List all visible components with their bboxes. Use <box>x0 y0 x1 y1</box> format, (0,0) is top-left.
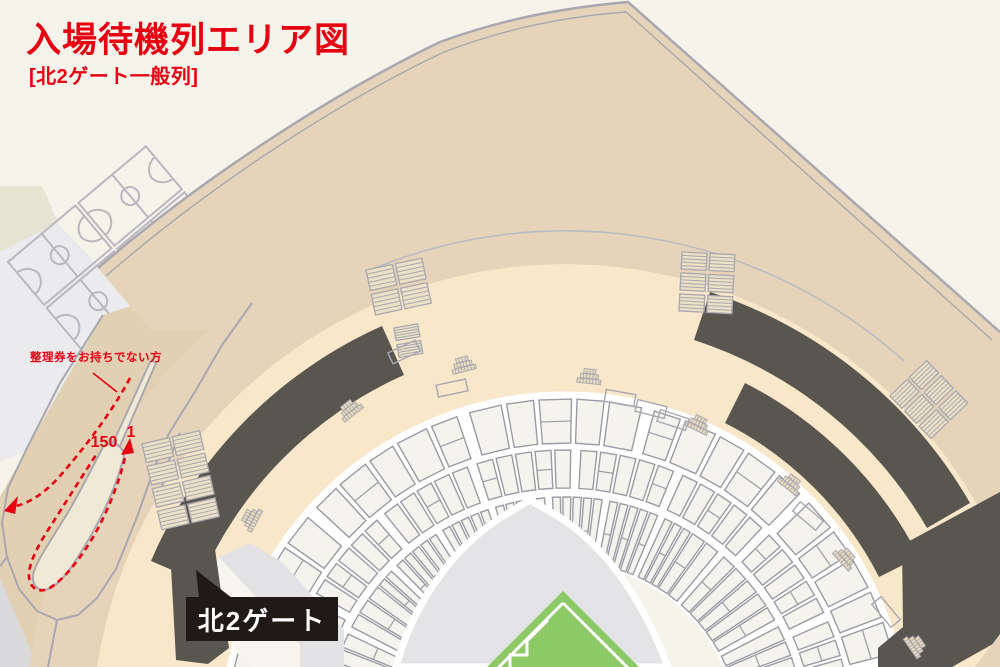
stadium-queue-map-page: 150 1 入場待機列エリア図 [北2ゲート一般列] 整理券をお持ちでない方 北… <box>0 0 1000 667</box>
queue-position-1: 1 <box>127 424 136 441</box>
no-ticket-annotation: 整理券をお持ちでない方 <box>30 349 162 365</box>
page-title: 入場待機列エリア図 <box>26 12 350 63</box>
stadium-map: 150 1 <box>0 0 1000 667</box>
seat-section <box>576 399 605 445</box>
seat-section <box>555 450 571 488</box>
page-subtitle: [北2ゲート一般列] <box>29 60 198 89</box>
gate-callout: 北2ゲート <box>186 597 338 641</box>
queue-position-150: 150 <box>91 434 118 451</box>
